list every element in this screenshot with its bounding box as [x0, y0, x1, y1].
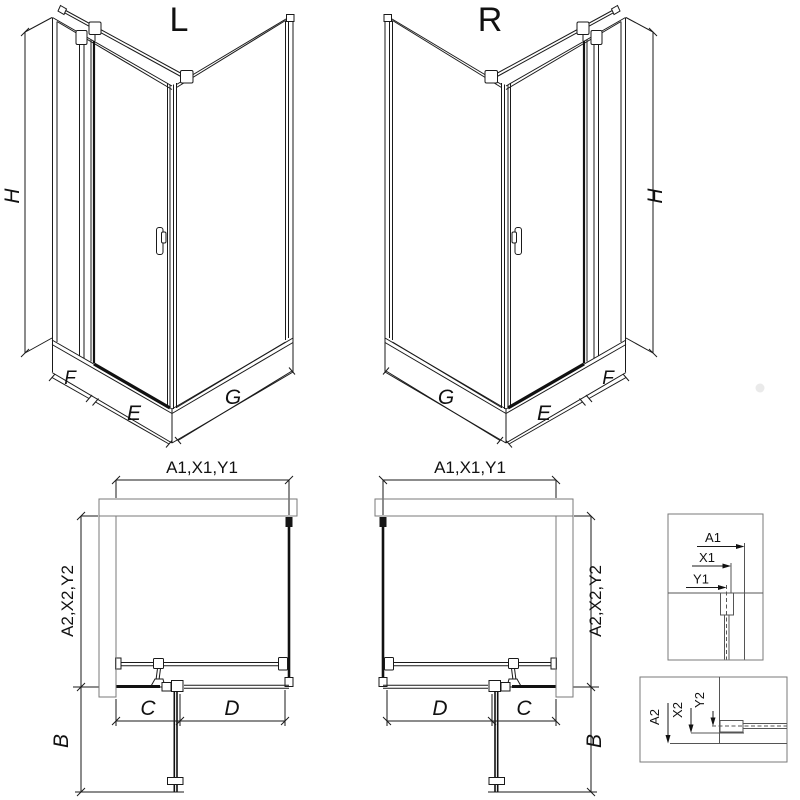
- iso-right-dim-g: G: [438, 386, 454, 409]
- plan-left-labels: A1,X1,Y1 A2,X2,Y2 C D B: [50, 458, 240, 748]
- plan-left-dim-d: D: [224, 697, 239, 720]
- plan-left-walls: [99, 499, 297, 697]
- plan-left-dim-depth: A2,X2,Y2: [58, 565, 77, 637]
- plan-left-dim-b: B: [50, 734, 73, 748]
- detail-labels: A1 X1 Y1 A2 X2 Y2: [647, 530, 721, 725]
- detail-dim-y1: Y1: [693, 572, 709, 587]
- iso-right-dim-f: F: [602, 368, 615, 389]
- detail-dim-x2: X2: [670, 702, 685, 718]
- plan-right-walls: [375, 499, 573, 697]
- shower-enclosure-technical-drawing: L H F E G R H F E G A1,X1,Y1 A2,X2,Y2 C …: [0, 0, 800, 800]
- plan-right-dim-c: C: [516, 697, 532, 720]
- iso-left-dim-g: G: [225, 386, 241, 409]
- plan-right-labels: A1,X1,Y1 A2,X2,Y2 C D B: [432, 458, 606, 748]
- plan-geometry-mirrored: [379, 476, 599, 796]
- detail-dim-a1: A1: [705, 530, 721, 545]
- detail-box-a2: [640, 677, 787, 762]
- iso-left-dim-e: E: [127, 402, 142, 425]
- iso-left-label: L: [170, 1, 189, 39]
- plan-right-dim-b: B: [583, 734, 606, 748]
- plan-left-dim-width: A1,X1,Y1: [166, 458, 238, 477]
- iso-left-dim-h: H: [1, 188, 24, 204]
- plan-right-dim-d: D: [432, 697, 447, 720]
- plan-left-dim-c: C: [140, 697, 156, 720]
- detail-dim-x1: X1: [699, 550, 715, 565]
- iso-right-labels: R H F E G: [438, 1, 667, 425]
- iso-right-dim-e: E: [537, 402, 552, 425]
- iso-view-geometry: [21, 6, 295, 448]
- plan-right-dim-width: A1,X1,Y1: [434, 458, 506, 477]
- plan-view-geometry: [73, 476, 293, 796]
- detail-dim-y2: Y2: [692, 692, 707, 708]
- plan-right-dim-depth: A2,X2,Y2: [586, 565, 605, 637]
- iso-right-label: R: [478, 1, 503, 39]
- watermark-dot: [756, 384, 765, 393]
- detail-dim-a2: A2: [647, 709, 662, 725]
- iso-geometry-mirrored: [383, 6, 657, 448]
- iso-left-dim-f: F: [64, 368, 77, 389]
- drawing-svg: L H F E G R H F E G A1,X1,Y1 A2,X2,Y2 C …: [0, 0, 800, 800]
- iso-right-dim-h: H: [644, 188, 667, 204]
- iso-left-labels: L H F E G: [1, 1, 241, 425]
